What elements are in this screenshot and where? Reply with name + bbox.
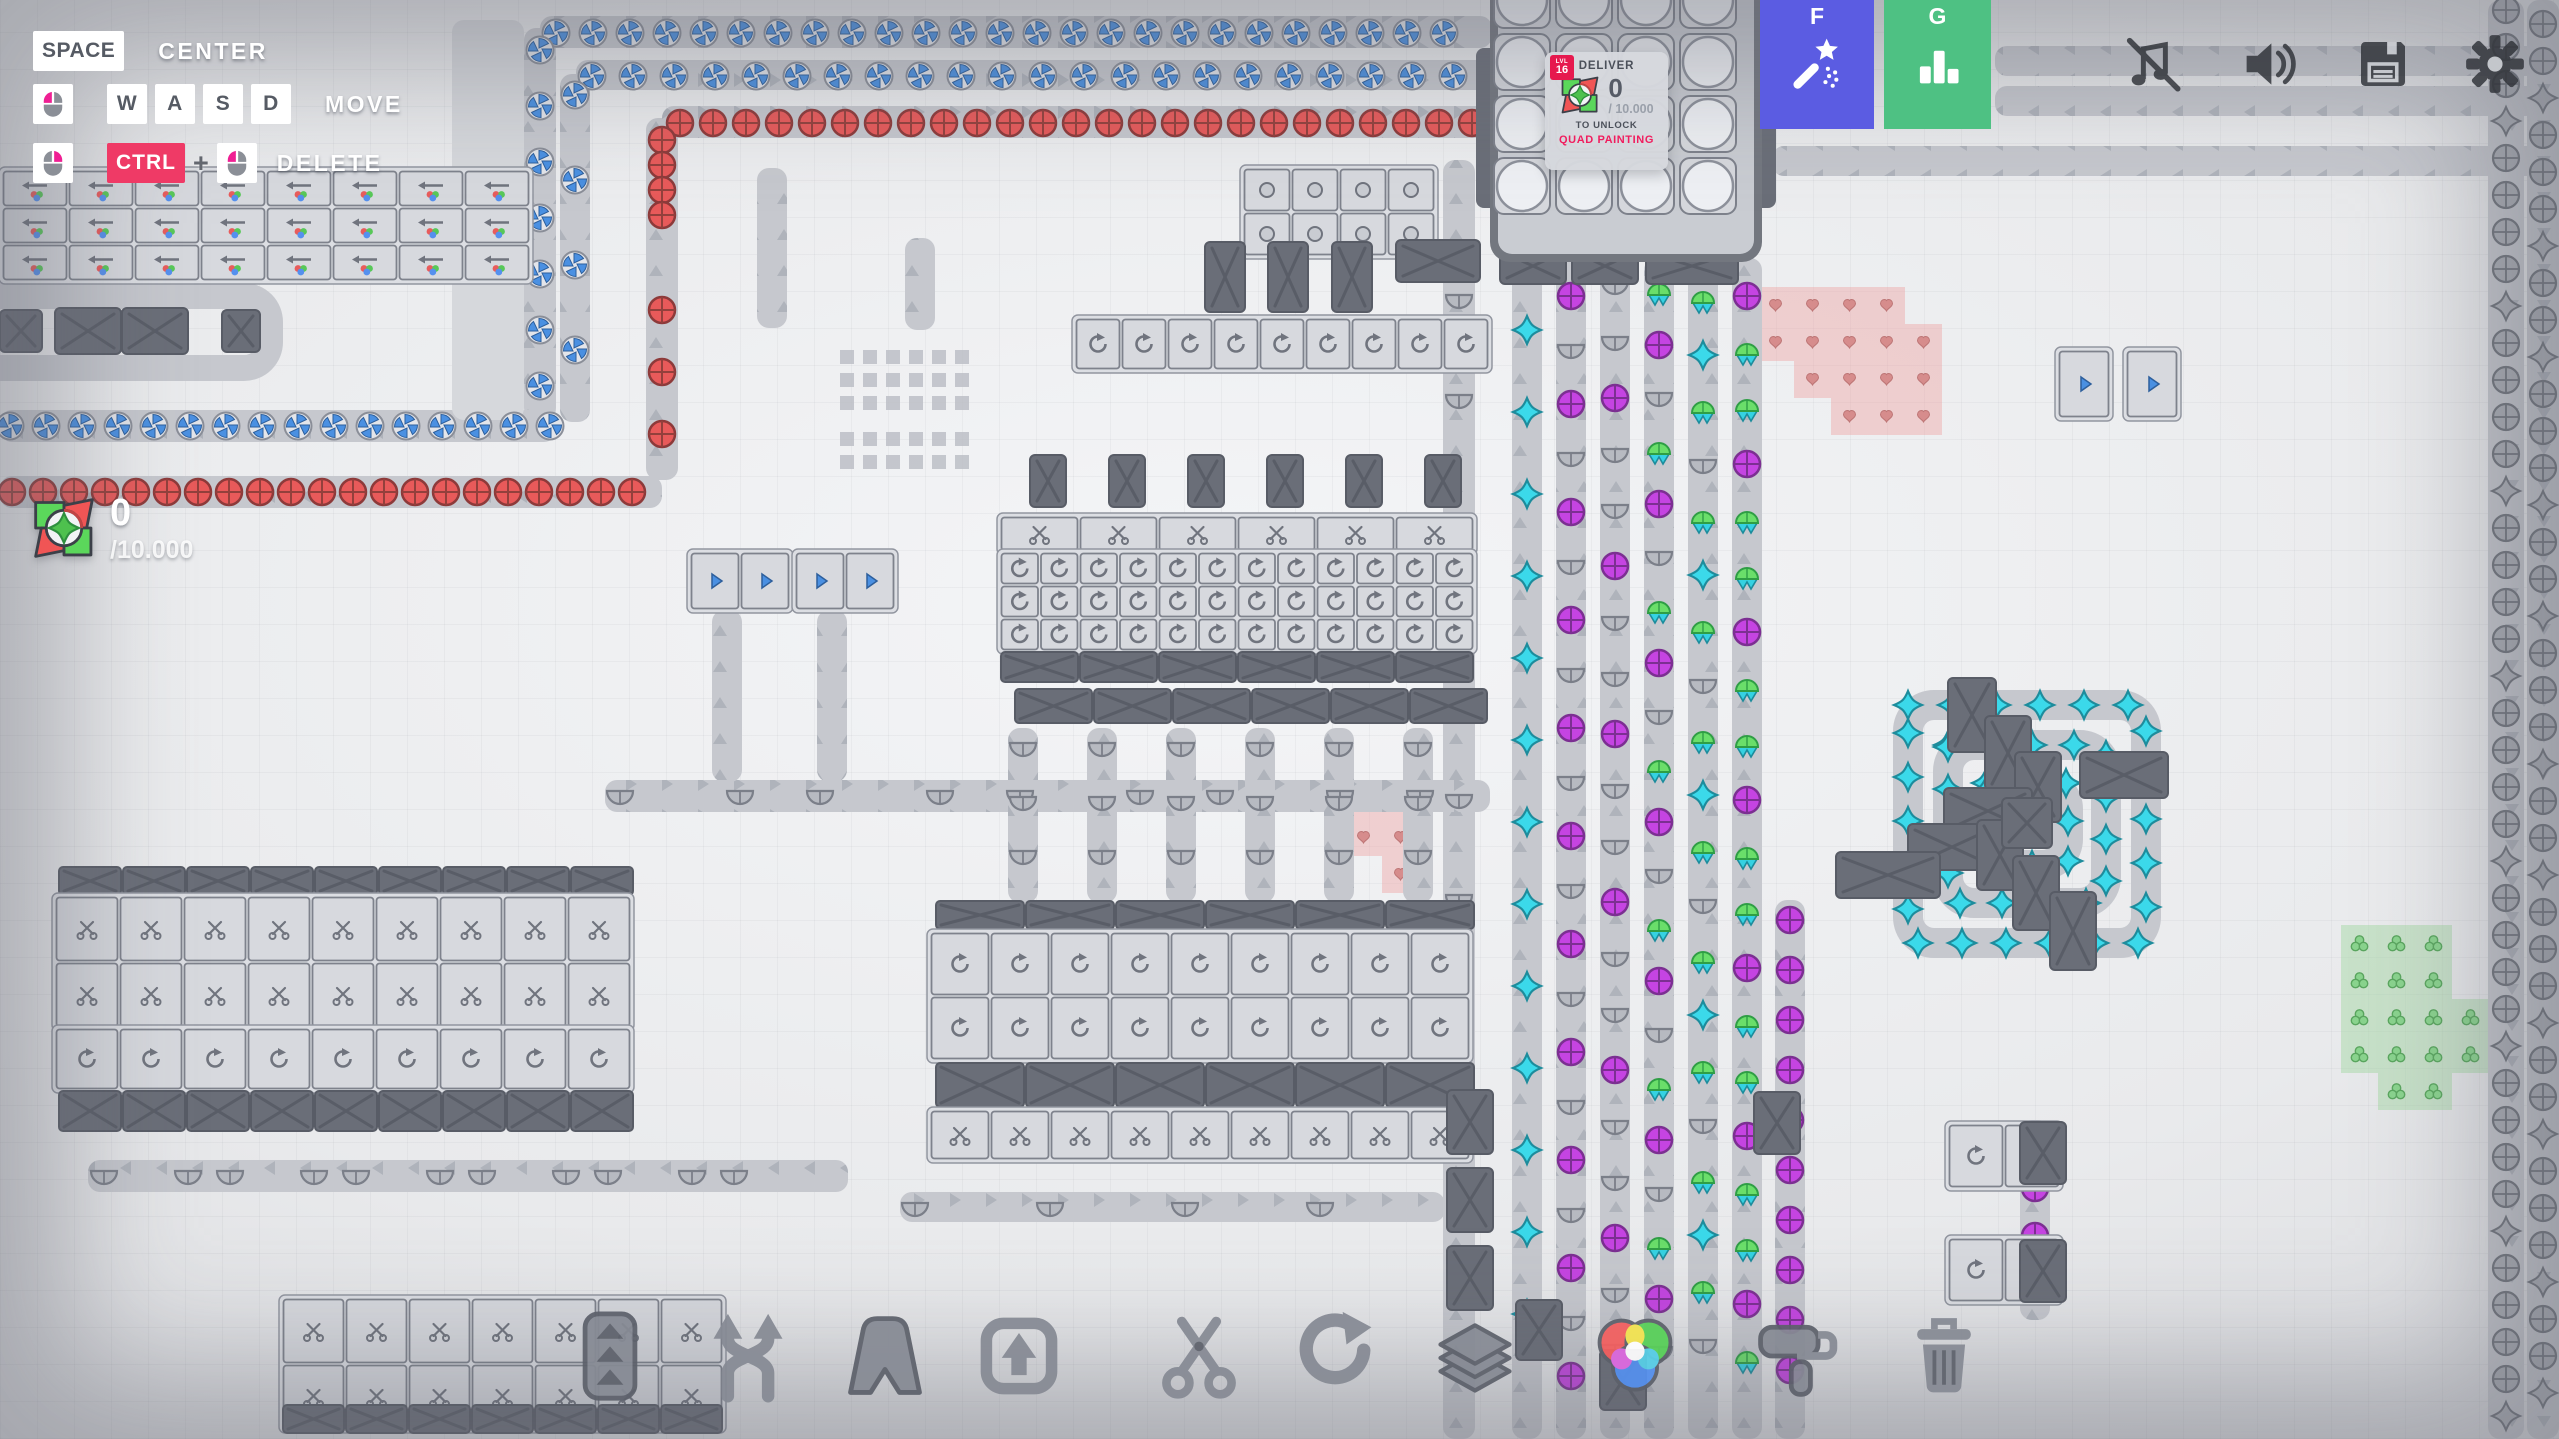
belt-icon	[564, 1393, 656, 1410]
stacker-icon	[1429, 1393, 1521, 1410]
delivery-goal-panel[interactable]: LVL 16 DELIVER 0 / 10.000 TO UNLOCK	[1545, 52, 1668, 170]
stats-hotkey-label: G	[1929, 4, 1947, 29]
toolbar-belt-button[interactable]	[564, 1306, 656, 1406]
hint-row-center: SPACE CENTER	[33, 31, 268, 71]
bar-chart-icon	[1909, 35, 1967, 93]
hint-row-move: W A S D MOVE	[33, 84, 403, 124]
balancer-icon	[702, 1393, 794, 1410]
wand-hotkey-button[interactable]: F	[1760, 0, 1874, 129]
tunnel-icon	[839, 1393, 931, 1410]
toolbar-painter-button[interactable]	[1589, 1306, 1681, 1406]
rotator-icon	[1289, 1393, 1381, 1410]
goal-unlock-label: TO UNLOCK	[1545, 120, 1668, 131]
toolbar-trash-button[interactable]	[1898, 1306, 1990, 1406]
goal-shape-icon	[1559, 74, 1601, 116]
a-key: A	[155, 84, 195, 124]
plus-sign: +	[193, 148, 209, 179]
counter-shape-icon	[30, 494, 98, 562]
toolbar-tunnel-button[interactable]	[839, 1306, 931, 1406]
painter-icon	[1589, 1393, 1681, 1410]
factory-canvas[interactable]	[0, 0, 2559, 1439]
ctrl-key: CTRL	[107, 143, 185, 183]
hint-row-delete: CTRL + DELETE	[33, 143, 383, 183]
cutter-icon	[1153, 1393, 1245, 1410]
mouse-right-icon	[33, 143, 73, 183]
level-badge: LVL 16	[1550, 55, 1574, 80]
volume-icon[interactable]	[2237, 26, 2303, 102]
toolbar-stacker-button[interactable]	[1429, 1306, 1521, 1406]
s-key: S	[203, 84, 243, 124]
delete-label: DELETE	[277, 150, 383, 177]
d-key: D	[251, 84, 291, 124]
toolbar-roller-button[interactable]	[1751, 1306, 1843, 1406]
toolbar-cutter-button[interactable]	[1153, 1306, 1245, 1406]
mouse-left-icon	[217, 143, 257, 183]
space-key: SPACE	[33, 31, 124, 71]
goal-target: / 10.000	[1608, 103, 1653, 116]
toolbar-lift-button[interactable]	[973, 1306, 1065, 1406]
music-muted-icon[interactable]	[2120, 26, 2186, 102]
mouse-left-icon	[33, 84, 73, 124]
center-label: CENTER	[158, 38, 268, 65]
stats-hotkey-button[interactable]: G	[1884, 0, 1991, 129]
save-icon[interactable]	[2350, 26, 2416, 102]
toolbar-balancer-button[interactable]	[702, 1306, 794, 1406]
goal-amount: 0	[1608, 75, 1653, 101]
counter-target: /10.000	[110, 536, 193, 565]
w-key: W	[107, 84, 147, 124]
settings-icon[interactable]	[2462, 26, 2528, 102]
lift-icon	[973, 1393, 1065, 1410]
move-label: MOVE	[325, 91, 403, 118]
counter-amount: 0	[110, 494, 193, 532]
wand-hotkey-label: F	[1810, 4, 1824, 29]
trash-icon	[1898, 1393, 1990, 1410]
magic-wand-icon	[1788, 35, 1846, 93]
roller-icon	[1751, 1393, 1843, 1410]
shape-counter: 0 /10.000	[30, 494, 193, 565]
toolbar-rotator-button[interactable]	[1289, 1306, 1381, 1406]
game-viewport: SPACE CENTER W A S D MOVE	[0, 0, 2559, 1439]
goal-reward: QUAD PAINTING	[1545, 134, 1668, 146]
